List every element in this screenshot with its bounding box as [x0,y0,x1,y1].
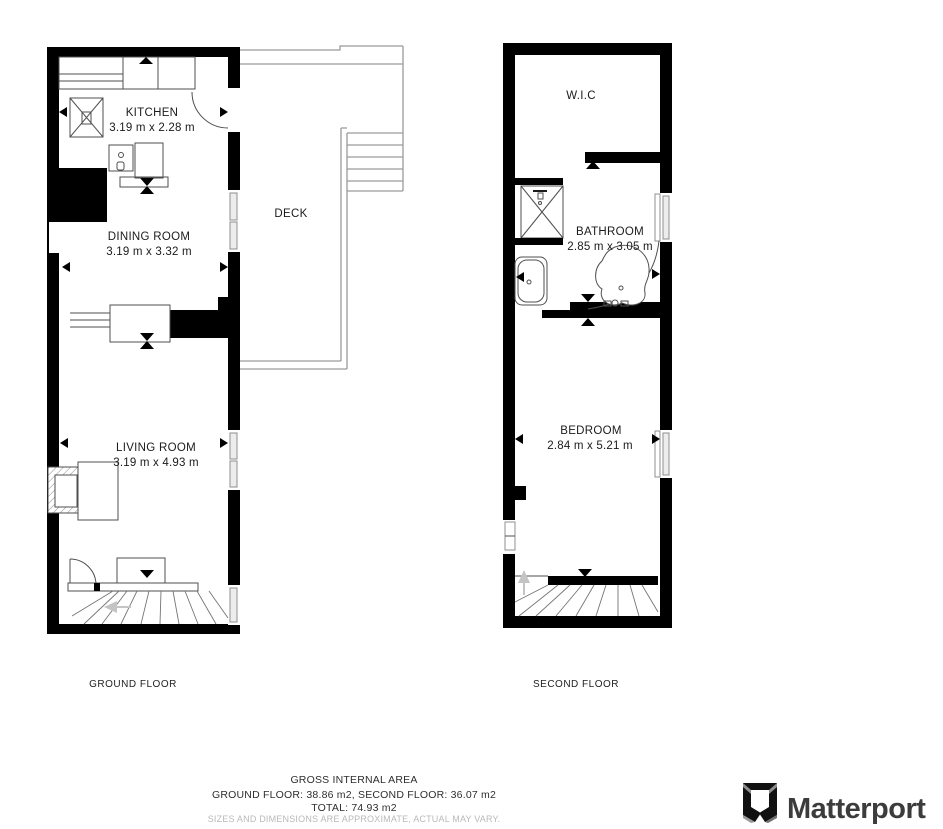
dimension-arrow-icon [59,107,67,117]
bathroom-dims: 2.85 m x 3.05 m [567,241,652,253]
area-summary: GROSS INTERNAL AREA GROUND FLOOR: 38.86 … [208,774,501,824]
dimension-arrow-icon [220,107,228,117]
floor-areas-line: GROUND FLOOR: 38.86 m2, SECOND FLOOR: 36… [212,789,496,801]
bedroom-label: BEDROOM [560,425,622,437]
threshold-marker-icon [140,178,154,186]
kitchen-counter [59,57,195,89]
hearth [78,462,118,520]
stove-icon [70,98,103,137]
threshold-marker-icon [581,294,595,302]
threshold-marker-icon [578,569,592,577]
deck-label: DECK [274,208,307,220]
dimension-arrow-icon [220,438,228,448]
floor-plan-canvas: KITCHEN 3.19 m x 2.28 m DINING ROOM 3.19… [0,0,943,829]
dimension-arrow-icon [220,262,228,272]
ground-floor-caption: GROUND FLOOR [89,679,177,690]
matterport-logo-icon [743,783,777,823]
bathroom-label: BATHROOM [576,226,644,238]
bathtub-icon [515,257,547,305]
deck-stairs [347,133,403,191]
second-walls [503,43,672,628]
gross-area-title: GROSS INTERNAL AREA [290,774,417,786]
bedroom-fixtures [515,434,660,616]
deck-outline [233,46,403,369]
dining-label: DINING ROOM [108,231,191,243]
second-floor-plan: W.I.C BATHROOM 2.85 m x 3.05 m BEDROOM 2… [503,43,672,690]
bedroom-window [663,433,669,475]
kitchen-dims: 3.19 m x 2.28 m [109,122,194,134]
living-dims: 3.19 m x 4.93 m [113,457,198,469]
dining-window [230,193,237,220]
kitchen-island [135,143,163,178]
kitchen-door-opening [228,88,240,132]
matterport-logo: Matterport [743,783,926,825]
ground-stairs [72,591,228,624]
stair-threshold [68,583,198,591]
dimension-arrow-icon [60,438,68,448]
kitchen-label: KITCHEN [126,107,179,119]
chimney-breast-kitchen [59,168,107,222]
vent-marker-icon [139,57,153,64]
dining-dims: 3.19 m x 3.32 m [106,246,191,258]
stair-wall [548,576,658,585]
pass-through [110,305,170,342]
dimension-arrow-icon [652,269,660,279]
dimension-arrow-icon [62,262,70,272]
shower-icon [521,186,563,238]
kitchen-sink-icon [109,145,133,171]
wall-recess [49,222,67,253]
living-window [230,433,237,459]
matterport-logo-text: Matterport [787,793,926,825]
dimension-arrow-icon [515,434,523,444]
threshold-marker-icon [581,318,595,326]
second-stairs [515,585,658,616]
ground-floor-plan: KITCHEN 3.19 m x 2.28 m DINING ROOM 3.19… [47,46,403,690]
entry-door-arc [70,559,96,585]
second-floor-caption: SECOND FLOOR [533,679,619,690]
wic-label: W.I.C [566,90,596,102]
bedroom-dims: 2.84 m x 5.21 m [547,440,632,452]
bathroom-window [663,196,669,239]
deck-railing [236,128,347,369]
stair-window [230,588,237,622]
living-label: LIVING ROOM [116,442,196,454]
total-area-line: TOTAL: 74.93 m2 [311,802,396,814]
floorplan-page: KITCHEN 3.19 m x 2.28 m DINING ROOM 3.19… [0,0,943,829]
disclaimer-line: SIZES AND DIMENSIONS ARE APPROXIMATE, AC… [208,814,501,824]
